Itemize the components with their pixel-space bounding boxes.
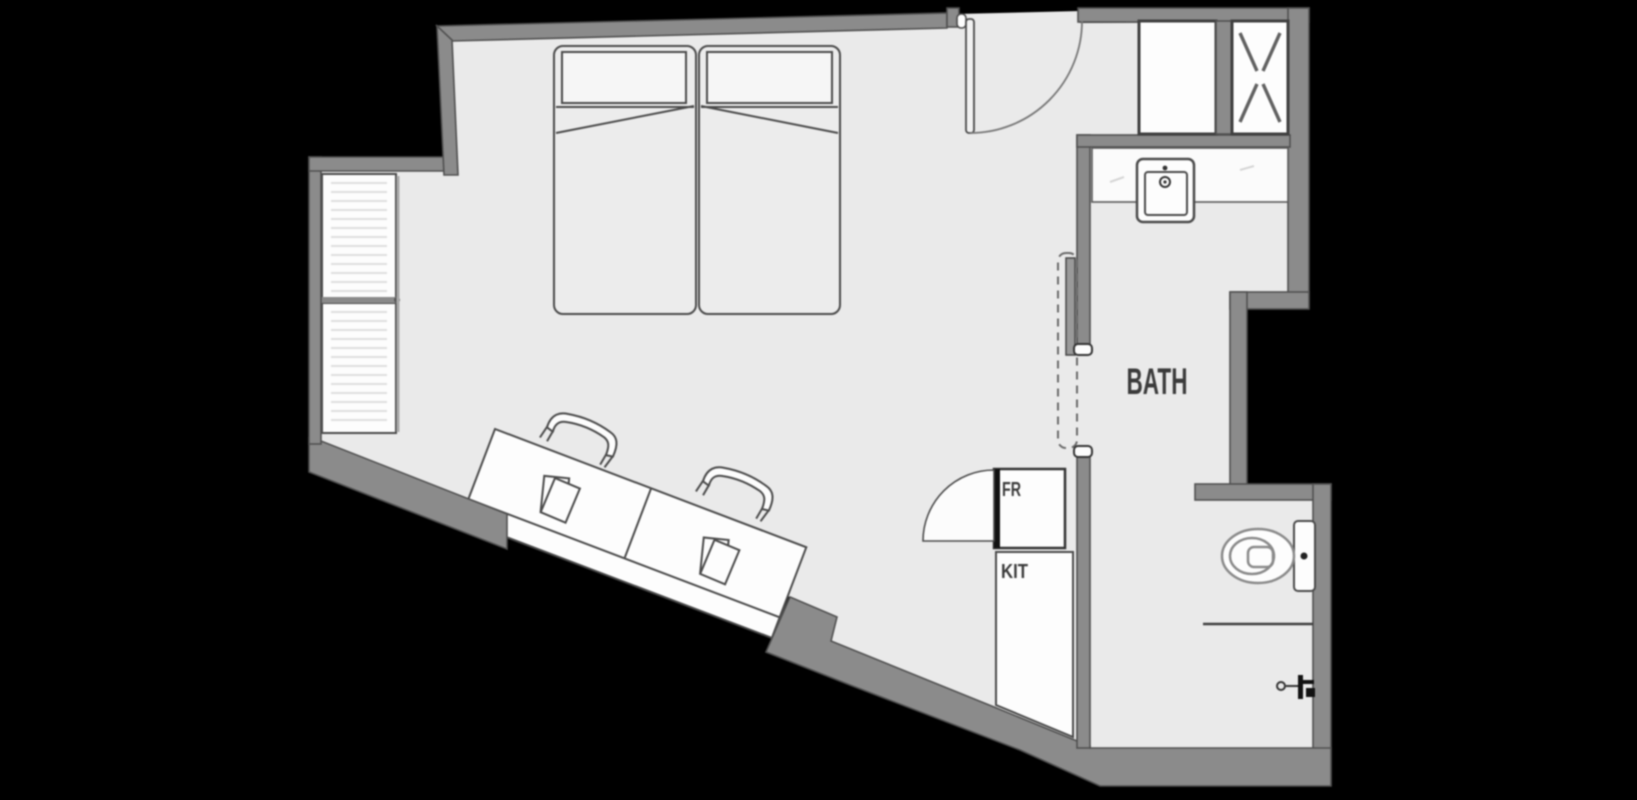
svg-text:FR: FR xyxy=(1002,479,1021,501)
svg-text:BATH: BATH xyxy=(1127,361,1188,402)
svg-text:KIT: KIT xyxy=(1001,561,1028,583)
